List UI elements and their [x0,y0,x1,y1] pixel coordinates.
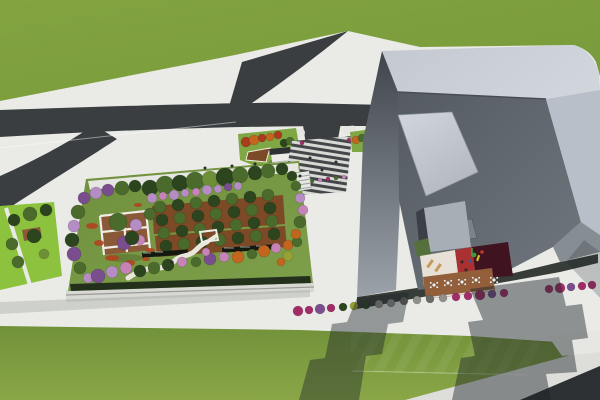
tree [294,216,306,228]
tree [148,262,160,274]
shrub [318,178,322,182]
tree [144,208,156,220]
tree [125,231,139,245]
tree [190,197,202,209]
flower-patch [86,223,98,229]
tree [230,219,242,231]
flower-patch [145,248,155,252]
tree [156,214,168,226]
chair [496,277,498,279]
tree [174,212,186,224]
tree [244,191,256,203]
tree [130,219,142,231]
shrub [310,179,314,183]
tree [216,168,234,186]
tree [276,163,288,175]
tree [266,133,274,141]
chair [430,282,432,284]
tree [106,266,118,278]
shrub [305,306,313,314]
tree [115,181,129,195]
shrub [347,138,351,142]
render-canvas [0,0,600,400]
chair [464,283,466,285]
tree [232,167,248,183]
tree [159,192,167,200]
tree [295,193,305,203]
table [432,283,435,286]
tree [27,229,41,243]
tree [219,252,229,262]
tree [208,195,220,207]
tree [192,188,200,196]
chair [496,281,498,283]
tree [291,229,301,239]
play-green [472,253,477,258]
tree [202,185,212,195]
tree [261,164,275,178]
tree [172,175,188,191]
tree [186,172,204,190]
chair [458,279,460,281]
tree [158,227,170,239]
shrub [413,296,421,304]
tree [277,258,285,266]
tree [39,249,49,259]
tree [178,238,190,250]
tree [249,135,259,145]
tree [6,238,18,250]
tree [291,181,301,191]
tree [250,230,262,242]
tree [232,251,244,263]
tree [228,206,240,218]
chair [430,286,432,288]
tree [181,189,189,197]
tree [264,202,276,214]
tree [283,251,293,261]
chair [450,284,452,286]
tree [248,166,262,180]
tree [71,205,85,219]
tree [191,257,201,267]
tree [169,190,179,200]
person [465,269,468,272]
chair [464,279,466,281]
tree [154,201,166,213]
tree [102,184,114,196]
chair [444,284,446,286]
tree [160,240,172,252]
tree [65,233,79,247]
tree [283,240,293,250]
tree [258,134,266,142]
tree [232,232,244,244]
chair [444,280,446,282]
tree [298,205,308,215]
tree [68,220,80,232]
tree [268,228,280,240]
courtyard-back-wall [424,201,471,252]
tree [210,208,222,220]
table [492,278,495,281]
tree [12,256,24,268]
chair [458,283,460,285]
tree [109,213,127,231]
person [309,157,312,160]
shrub [293,306,303,316]
tree [129,180,141,192]
tree [8,214,20,226]
table [446,281,449,284]
tree [91,269,105,283]
tree [134,265,146,277]
tree [172,199,184,211]
tree [202,171,218,187]
tree [23,207,37,221]
person [204,167,207,170]
tree [266,215,278,227]
tree [176,225,188,237]
person [231,165,234,168]
shrub [426,295,434,303]
chair [450,280,452,282]
person [335,161,338,164]
garden-building [65,161,314,302]
chair [436,282,438,284]
shrub [300,141,304,145]
play-blue [469,260,472,263]
tree [224,183,232,191]
play-red [480,250,484,254]
shrub [342,175,346,179]
tree [274,131,282,139]
tree [78,192,90,204]
tree [202,248,210,256]
tree [271,243,281,253]
shrub [315,304,325,314]
shrub [327,304,335,312]
chair [478,281,480,283]
table [474,278,477,281]
flower-patch [134,203,142,207]
tree [192,210,204,222]
chair [490,277,492,279]
aerial-render [0,0,600,400]
chair [436,286,438,288]
tree [226,193,238,205]
tree [287,171,297,181]
flower-patch [94,240,104,246]
chair [478,277,480,279]
person [321,169,324,172]
shrub [452,293,460,301]
tree [246,204,258,216]
person [171,261,174,264]
tree [147,193,157,203]
chair [490,281,492,283]
tree [90,187,102,199]
tree [234,182,242,190]
person [254,163,257,166]
shrub [439,294,447,302]
tree [247,249,257,259]
shrub [578,282,586,290]
shrub [326,177,330,181]
tree [262,189,274,201]
shrub [334,176,338,180]
tower-building [357,45,600,299]
person [461,261,464,264]
shrub [567,283,575,291]
tower-roof-band [382,45,600,99]
chair [472,281,474,283]
tree [74,262,86,274]
tree [248,217,260,229]
tree [40,204,52,216]
person [299,175,302,178]
tree [67,247,81,261]
shrub [339,303,347,311]
chair [472,277,474,279]
flower-patch [142,257,150,261]
tree [258,245,270,257]
flower-patch [105,255,119,261]
shrub [464,292,472,300]
table [460,280,463,283]
tree [177,257,187,267]
tree [120,262,132,274]
tree [214,185,222,193]
